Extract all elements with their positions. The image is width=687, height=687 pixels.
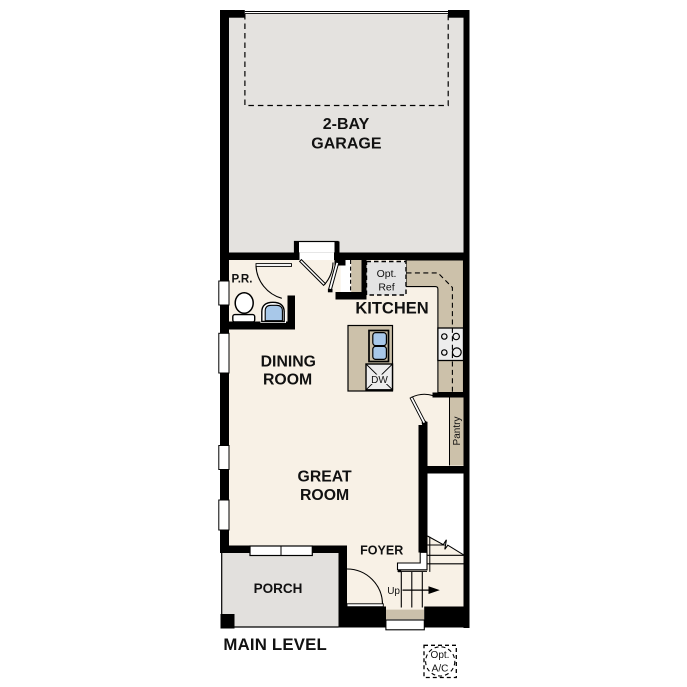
svg-text:ROOM: ROOM	[263, 372, 312, 389]
svg-text:Opt.: Opt.	[377, 268, 397, 280]
svg-text:Ref: Ref	[378, 282, 394, 294]
svg-text:GARAGE: GARAGE	[311, 136, 382, 153]
svg-text:MAIN LEVEL: MAIN LEVEL	[223, 635, 327, 654]
svg-text:Opt.: Opt.	[431, 650, 450, 661]
svg-text:ROOM: ROOM	[300, 487, 349, 504]
svg-text:A/C: A/C	[432, 664, 449, 675]
svg-text:DW: DW	[371, 375, 388, 386]
svg-text:Up: Up	[387, 586, 400, 597]
svg-text:PORCH: PORCH	[254, 581, 303, 596]
svg-text:FOYER: FOYER	[360, 544, 403, 558]
svg-text:P.R.: P.R.	[232, 274, 253, 286]
svg-text:KITCHEN: KITCHEN	[355, 300, 428, 318]
svg-text:Pantry: Pantry	[452, 417, 463, 446]
svg-text:DINING: DINING	[261, 354, 316, 371]
svg-text:2-BAY: 2-BAY	[323, 116, 370, 133]
svg-text:GREAT: GREAT	[298, 469, 352, 486]
